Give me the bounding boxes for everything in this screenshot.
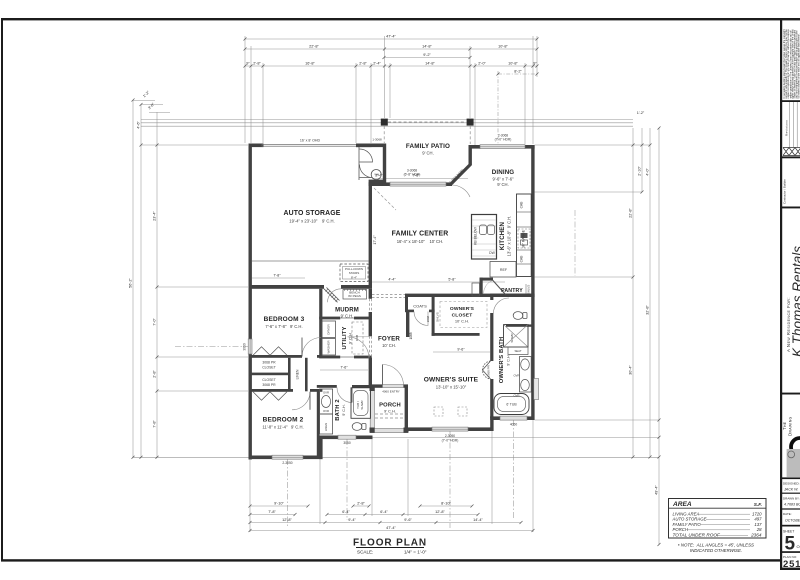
svg-text:KB BELOW: KB BELOW	[474, 226, 478, 245]
svg-text:AREA: AREA	[672, 501, 692, 508]
svg-text:• NOTE: ALL ANGLES = 45', UNL: • NOTE: ALL ANGLES = 45', UNLESS	[678, 543, 754, 548]
svg-text:CAB: CAB	[520, 255, 524, 263]
svg-text:WH: WH	[374, 173, 379, 177]
svg-text:FLOOR PLAN: FLOOR PLAN	[353, 538, 427, 549]
svg-text:2668 PR: 2668 PR	[486, 364, 490, 377]
svg-text:TOTAL UNDER ROOF: TOTAL UNDER ROOF	[673, 533, 722, 538]
svg-text:28: 28	[756, 527, 762, 532]
svg-text:8'-4": 8'-4"	[351, 276, 357, 280]
svg-text:23'-4": 23'-4"	[153, 211, 157, 221]
svg-text:JACK W.: JACK W.	[783, 488, 798, 492]
svg-text:DESIGNED:: DESIGNED:	[783, 482, 800, 486]
svg-text:CAB: CAB	[520, 201, 524, 209]
svg-text:3068 PR: 3068 PR	[262, 361, 276, 365]
svg-text:10' CH.: 10' CH.	[382, 343, 396, 348]
svg-text:22'-8": 22'-8"	[309, 45, 319, 49]
svg-text:FOYER: FOYER	[378, 336, 400, 343]
svg-text:(6'-8" HDR): (6'-8" HDR)	[404, 173, 421, 177]
svg-text:2'-4": 2'-4"	[373, 62, 381, 66]
svg-text:47'-4": 47'-4"	[386, 35, 396, 39]
svg-text:4'-0": 4'-0"	[646, 168, 650, 176]
svg-text:SHWR: SHWR	[510, 333, 514, 343]
svg-text:W/ PEGS: W/ PEGS	[348, 294, 361, 298]
svg-text:CLOSET: CLOSET	[262, 366, 276, 370]
svg-text:9'-6": 9'-6"	[457, 348, 465, 352]
svg-text:2'-8": 2'-8"	[357, 502, 365, 506]
svg-text:Contractor / Builder: Contractor / Builder	[783, 179, 787, 204]
svg-text:BEDROOM 2: BEDROOM 2	[263, 417, 304, 424]
svg-text:Revisions: Revisions	[784, 120, 788, 136]
svg-text:56'-2": 56'-2"	[129, 278, 133, 288]
svg-text:KITCHEN: KITCHEN	[499, 222, 506, 250]
svg-text:32'-8": 32'-8"	[646, 305, 650, 315]
svg-text:OWNER'S SUITE: OWNER'S SUITE	[424, 377, 479, 384]
svg-text:9' CH.: 9' CH.	[497, 182, 509, 187]
svg-text:2-3050: 2-3050	[282, 461, 292, 465]
svg-text:4060 ENTRY: 4060 ENTRY	[382, 390, 400, 394]
svg-text:12'-8": 12'-8"	[435, 510, 445, 514]
svg-text:6'-4": 6'-4"	[342, 510, 350, 514]
svg-text:DW: DW	[489, 251, 495, 255]
svg-text:1-3068: 1-3068	[372, 138, 382, 142]
svg-text:BATH 2: BATH 2	[335, 399, 341, 420]
svg-text:9' C.H.: 9' C.H.	[507, 354, 511, 366]
svg-text:7'-0": 7'-0"	[153, 318, 157, 326]
svg-text:9' CH.: 9' CH.	[422, 151, 434, 156]
svg-text:SHWR: SHWR	[360, 400, 364, 410]
svg-text:2364: 2364	[750, 533, 762, 538]
svg-text:2-3050: 2-3050	[445, 434, 455, 438]
svg-text:OVR: OVR	[323, 409, 329, 413]
svg-text:DINING: DINING	[492, 169, 515, 176]
svg-text:LINEN: LINEN	[324, 423, 328, 431]
svg-text:OVR: OVR	[323, 391, 329, 395]
svg-text:9'-4": 9'-4"	[348, 518, 356, 522]
svg-text:WASHER: WASHER	[327, 340, 331, 354]
svg-text:OVR: OVR	[513, 374, 519, 378]
svg-text:7'-6" x 7'-8" 9' C.H.: 7'-6" x 7'-8" 9' C.H.	[265, 324, 302, 329]
svg-text:(7'-0" HDR): (7'-0" HDR)	[495, 138, 512, 142]
svg-text:16' x 8' OHD: 16' x 8' OHD	[300, 139, 321, 143]
svg-text:2'-0": 2'-0"	[478, 62, 486, 66]
svg-text:2512: 2512	[783, 559, 800, 570]
svg-text:49'-4": 49'-4"	[655, 485, 659, 495]
svg-text:22'-8": 22'-8"	[629, 208, 633, 218]
svg-text:2'-8": 2'-8"	[153, 370, 157, 378]
svg-text:4'-4": 4'-4"	[388, 278, 396, 282]
svg-text:14'-8": 14'-8"	[425, 62, 435, 66]
svg-text:9' C.H.: 9' C.H.	[342, 404, 346, 416]
svg-text:9'-6": 9'-6"	[404, 518, 412, 522]
svg-text:FAMILY CENTER: FAMILY CENTER	[392, 231, 449, 238]
svg-text:10'-8": 10'-8"	[498, 45, 508, 49]
svg-text:1/4" = 1'-0": 1/4" = 1'-0"	[404, 550, 427, 555]
svg-text:7'-8": 7'-8"	[273, 274, 281, 278]
svg-text:19'-4" x 23'-10" 9' C.H.: 19'-4" x 23'-10" 9' C.H.	[289, 219, 334, 224]
svg-text:CLOSET: CLOSET	[262, 378, 276, 382]
svg-text:13'-6" x 10'-8" 9' C.H.: 13'-6" x 10'-8" 9' C.H.	[507, 216, 512, 257]
svg-text:OWNER'S: OWNER'S	[450, 306, 475, 312]
svg-text:LINEN: LINEN	[296, 369, 300, 379]
svg-text:9'-10": 9'-10"	[274, 502, 284, 506]
svg-text:36" RANGE: 36" RANGE	[522, 229, 526, 248]
svg-text:THE: THE	[782, 421, 787, 430]
svg-text:AUTO STORAGE: AUTO STORAGE	[283, 210, 340, 217]
svg-text:12'-8": 12'-8"	[282, 518, 292, 522]
svg-text:8'-10": 8'-10"	[441, 502, 451, 506]
svg-text:(7'-0" HDR): (7'-0" HDR)	[442, 439, 459, 443]
svg-text:OWNER'S BATH: OWNER'S BATH	[499, 337, 505, 384]
svg-text:6' TUB: 6' TUB	[506, 403, 517, 407]
svg-text:5'-8": 5'-8"	[448, 278, 456, 282]
svg-text:8'-2": 8'-2"	[514, 70, 522, 74]
svg-text:S.F.: S.F.	[754, 502, 763, 508]
svg-text:16'-4" x 18'-10" 10' CH.: 16'-4" x 18'-10" 10' CH.	[397, 239, 444, 244]
svg-text:STAIRS: STAIRS	[349, 271, 360, 275]
svg-text:14'-8": 14'-8"	[422, 45, 432, 49]
svg-text:2668: 2668	[426, 315, 430, 322]
svg-text:9' C.H.: 9' C.H.	[341, 314, 354, 319]
svg-text:3050: 3050	[343, 441, 351, 445]
svg-text:1068: 1068	[409, 332, 413, 339]
svg-text:6'-4": 6'-4"	[380, 510, 388, 514]
svg-text:OCTOBER: OCTOBER	[785, 519, 800, 523]
svg-text:7'-8": 7'-8"	[268, 510, 276, 514]
svg-text:SHLVS: SHLVS	[436, 312, 440, 322]
svg-text:9'-2": 9'-2"	[423, 53, 431, 57]
svg-text:OF: OF	[797, 544, 800, 549]
svg-text:PANTRY: PANTRY	[501, 288, 523, 294]
svg-text:SCALE:: SCALE:	[357, 550, 373, 555]
svg-text:16'-8": 16'-8"	[305, 62, 315, 66]
svg-text:DRAWING: DRAWING	[787, 416, 792, 436]
svg-text:9' C.H.: 9' C.H.	[384, 409, 396, 414]
svg-text:DRAWN BY:: DRAWN BY:	[783, 496, 800, 500]
svg-text:14'-4": 14'-4"	[473, 518, 483, 522]
svg-text:4'-6": 4'-6"	[137, 121, 141, 129]
svg-text:17'-4": 17'-4"	[373, 235, 377, 245]
svg-text:FAMILY PATIO: FAMILY PATIO	[406, 143, 450, 150]
svg-text:BEDROOM 3: BEDROOM 3	[264, 316, 305, 323]
svg-text:CAB: CAB	[355, 335, 359, 341]
svg-text:COATS: COATS	[413, 304, 427, 309]
svg-text:INDICATED OTHERWISE.: INDICATED OTHERWISE.	[690, 548, 742, 553]
svg-text:2'-8": 2'-8"	[253, 62, 261, 66]
svg-text:30'-4": 30'-4"	[629, 365, 633, 375]
svg-text:3050: 3050	[243, 343, 247, 351]
svg-text:10' C.H.: 10' C.H.	[455, 319, 469, 324]
svg-text:PORCH: PORCH	[673, 527, 689, 532]
svg-text:10'-8": 10'-8"	[508, 62, 518, 66]
svg-text:2'-8": 2'-8"	[359, 62, 367, 66]
svg-text:47'-4": 47'-4"	[386, 526, 396, 530]
svg-text:SEAT: SEAT	[514, 349, 521, 353]
svg-text:SHLVS: SHLVS	[527, 285, 531, 295]
svg-text:DRYER: DRYER	[327, 323, 331, 334]
svg-text:OVR: OVR	[513, 394, 519, 398]
svg-text:REF: REF	[500, 268, 508, 272]
svg-text:3068 PR: 3068 PR	[262, 383, 276, 387]
svg-text:9' C.H.: 9' C.H.	[348, 332, 353, 344]
svg-text:DATE:: DATE:	[783, 512, 792, 516]
svg-text:4050: 4050	[510, 423, 518, 427]
svg-text:7'-8": 7'-8"	[153, 420, 157, 428]
svg-text:4.7683 BOB: 4.7683 BOB	[784, 503, 800, 507]
svg-text:11'-8" x 11'-4" 9' C.H.: 11'-8" x 11'-4" 9' C.H.	[262, 425, 303, 430]
svg-text:7'-6": 7'-6"	[340, 366, 348, 370]
svg-text:1'-2": 1'-2"	[637, 111, 645, 115]
svg-text:K Thomas Rentals: K Thomas Rentals	[790, 246, 800, 357]
svg-text:2'-10": 2'-10"	[638, 166, 642, 176]
svg-text:9'-6" x 7'-6": 9'-6" x 7'-6"	[492, 177, 514, 182]
svg-text:13'-10" x 15'-10": 13'-10" x 15'-10"	[436, 385, 467, 390]
